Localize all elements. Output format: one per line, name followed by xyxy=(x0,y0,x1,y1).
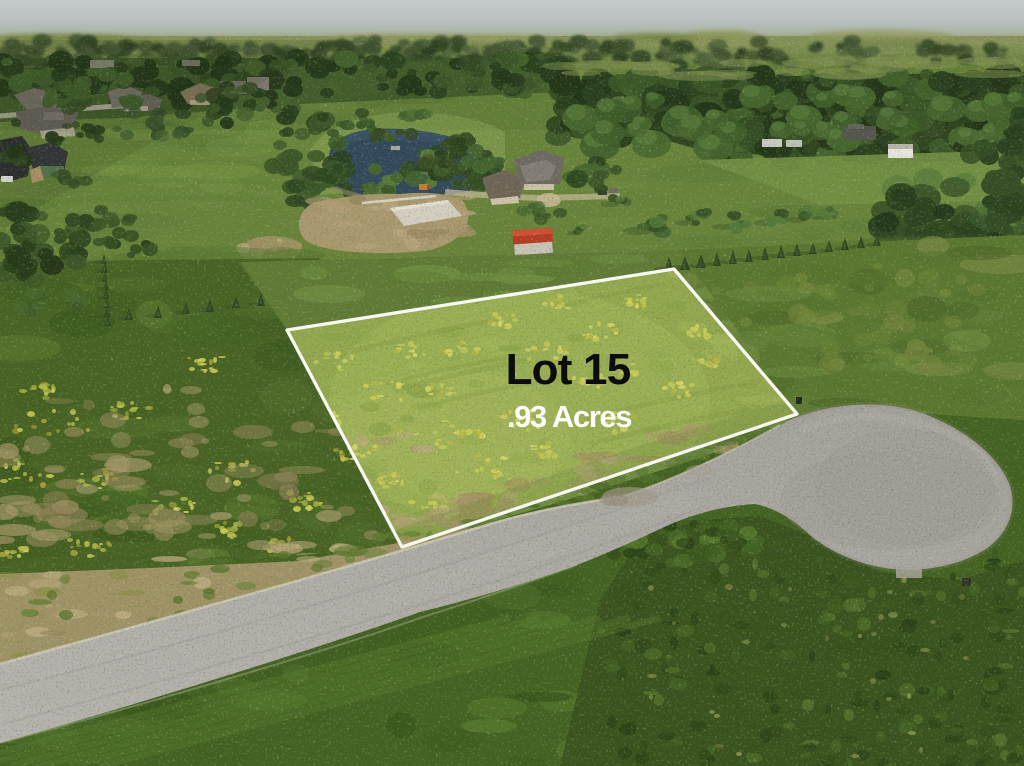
svg-text:Lot 15: Lot 15 xyxy=(506,345,631,394)
svg-text:.93 Acres: .93 Acres xyxy=(507,399,631,434)
